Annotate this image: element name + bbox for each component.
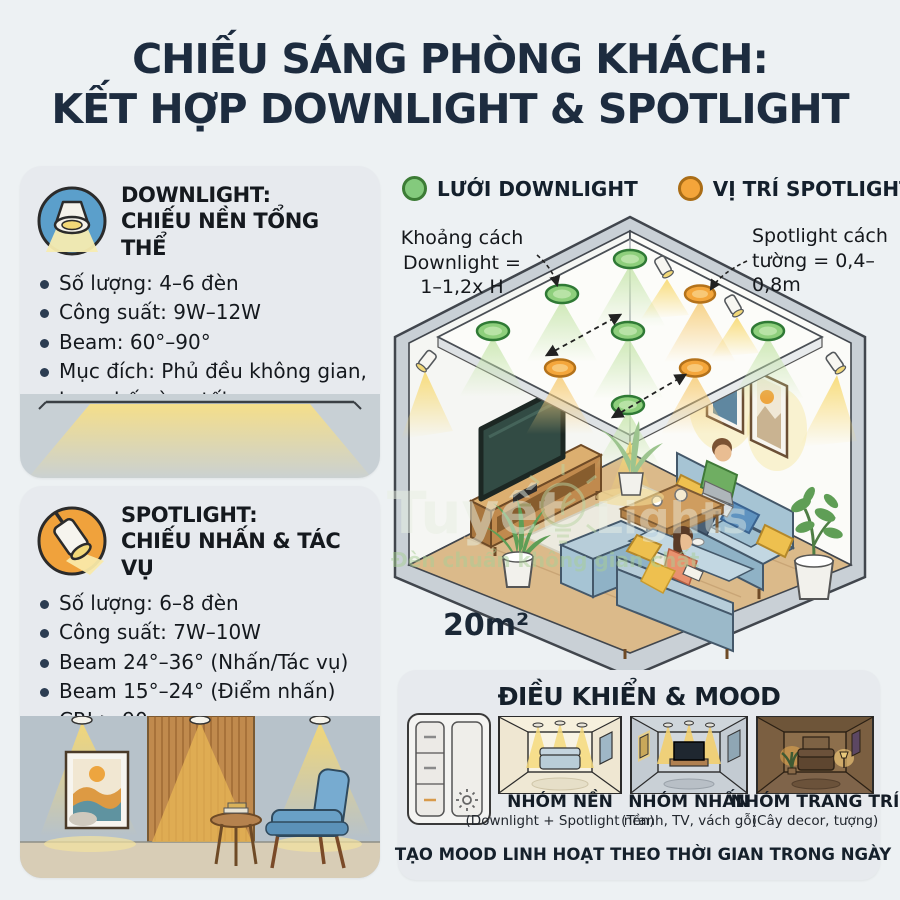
spotlight-position-dot-icon xyxy=(678,176,703,201)
mood-thumb-ambient xyxy=(498,716,622,794)
infographic-page: CHIẾU SÁNG PHÒNG KHÁCH: KẾT HỢP DOWNLIGH… xyxy=(0,0,900,900)
downlight-wash-illustration xyxy=(20,394,380,478)
bullet-item: Công suất: 9W–12W xyxy=(36,298,374,327)
page-title-line1: CHIẾU SÁNG PHÒNG KHÁCH: xyxy=(0,34,900,84)
bullet-item: Beam: 60°–90° xyxy=(36,328,374,357)
mood-caption-decor: NHÓM TRANG TRÍ (Cây decor, tượng) xyxy=(731,792,900,829)
svg-text:Đèn chuẩn không gian chất: Đèn chuẩn không gian chất xyxy=(391,548,700,572)
mood-thumb-accent xyxy=(630,716,748,794)
spotlight-panel-header: SPOTLIGHT: CHIẾU NHẤN & TÁC VỤ xyxy=(20,486,380,581)
mood-footer-text: TẠO MOOD LINH HOẠT THEO THỜI GIAN TRONG … xyxy=(395,845,891,864)
mood-footer: TẠO MOOD LINH HOẠT THEO THỜI GIAN TRONG … xyxy=(398,842,880,866)
bullet-item: Số lượng: 4–6 đèn xyxy=(36,269,374,298)
spotlight-panel-title: SPOTLIGHT: CHIẾU NHẤN & TÁC VỤ xyxy=(121,502,368,581)
page-title-line2: KẾT HỢP DOWNLIGHT & SPOTLIGHT xyxy=(0,84,900,134)
legend-item-downlight: LƯỚI DOWNLIGHT xyxy=(402,176,638,201)
svg-text:Tuyết: Tuyết xyxy=(387,479,566,547)
legend-item-spotlight: VỊ TRÍ SPOTLIGHT xyxy=(678,176,900,201)
downlight-icon xyxy=(36,185,108,257)
spotlight-title-line1: SPOTLIGHT: xyxy=(121,502,368,528)
spotlight-icon xyxy=(36,505,108,577)
mood-control-panel: ĐIỀU KHIỂN & MOOD xyxy=(398,670,880,880)
downlight-panel: DOWNLIGHT: CHIẾU NỀN TỔNG THỂ Số lượng: … xyxy=(20,166,380,478)
bullet-item: Beam 15°–24° (Điểm nhấn) xyxy=(36,677,374,706)
spotlight-scene-illustration xyxy=(20,716,380,878)
legend-downlight-label: LƯỚI DOWNLIGHT xyxy=(437,177,638,201)
spotlight-bullet-list: Số lượng: 6–8 đèn Công suất: 7W–10W Beam… xyxy=(20,589,380,736)
downlight-title-line1: DOWNLIGHT: xyxy=(121,182,368,208)
bullet-item: Công suất: 7W–10W xyxy=(36,618,374,647)
spotlight-panel: SPOTLIGHT: CHIẾU NHẤN & TÁC VỤ Số lượng:… xyxy=(20,486,380,878)
page-title: CHIẾU SÁNG PHÒNG KHÁCH: KẾT HỢP DOWNLIGH… xyxy=(0,34,900,134)
bullet-item: Beam 24°–36° (Nhấn/Tác vụ) xyxy=(36,648,374,677)
svg-text:Lights: Lights xyxy=(595,493,748,544)
annotation-downlight-spacing: Khoảng cách Downlight = 1–1,2x H xyxy=(390,226,534,300)
downlight-title-line2: CHIẾU NỀN TỔNG THỂ xyxy=(121,208,368,261)
spotlight-title-line2: CHIẾU NHẤN & TÁC VỤ xyxy=(121,528,368,581)
framed-art xyxy=(66,752,128,828)
downlight-grid-dot-icon xyxy=(402,176,427,201)
mood-thumb-decor xyxy=(756,716,874,794)
downlight-panel-header: DOWNLIGHT: CHIẾU NỀN TỔNG THỂ xyxy=(20,166,380,261)
legend: LƯỚI DOWNLIGHT VỊ TRÍ SPOTLIGHT xyxy=(402,176,900,201)
mood-panel-title: ĐIỀU KHIỂN & MOOD xyxy=(398,682,880,711)
downlight-panel-title: DOWNLIGHT: CHIẾU NỀN TỔNG THỂ xyxy=(121,182,368,261)
annotation-spotlight-distance: Spotlight cách tường = 0,4– 0,8m xyxy=(752,224,900,298)
legend-spotlight-label: VỊ TRÍ SPOTLIGHT xyxy=(713,177,900,201)
bullet-item: Số lượng: 6–8 đèn xyxy=(36,589,374,618)
area-label: 20m² xyxy=(443,608,529,643)
